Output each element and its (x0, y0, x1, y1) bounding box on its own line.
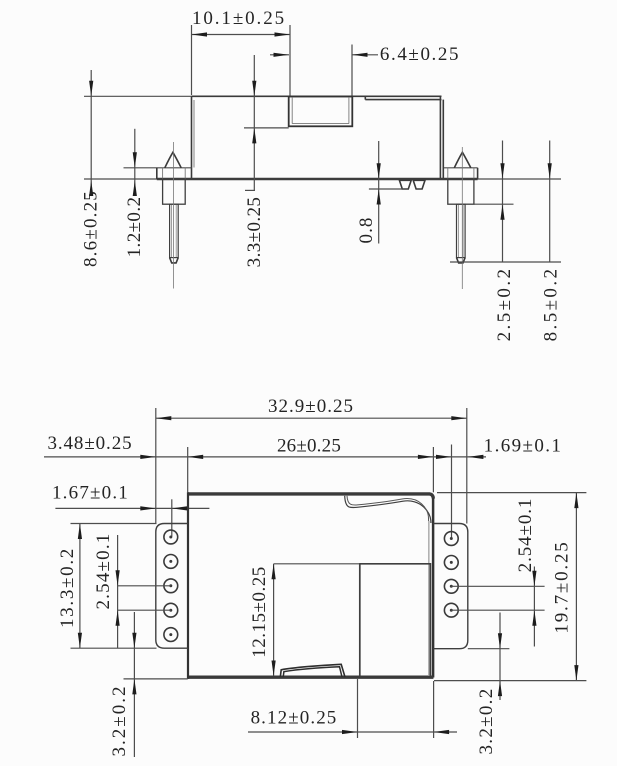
svg-text:2.54±0.1: 2.54±0.1 (515, 498, 536, 573)
svg-text:8.6±0.25: 8.6±0.25 (81, 190, 102, 267)
svg-text:12.15±0.25: 12.15±0.25 (249, 566, 270, 657)
svg-text:8.5±0.2: 8.5±0.2 (541, 267, 562, 342)
svg-text:3.3±0.25: 3.3±0.25 (244, 197, 265, 268)
svg-text:1.69±0.1: 1.69±0.1 (484, 436, 563, 457)
svg-text:32.9±0.25: 32.9±0.25 (268, 396, 354, 417)
svg-text:19.7±0.25: 19.7±0.25 (552, 540, 573, 633)
svg-text:2.5±0.2: 2.5±0.2 (494, 267, 515, 342)
svg-text:10.1±0.25: 10.1±0.25 (192, 8, 286, 29)
svg-text:1.2±0.2: 1.2±0.2 (124, 197, 145, 258)
svg-text:6.4±0.25: 6.4±0.25 (380, 44, 460, 65)
svg-text:3.2±0.2: 3.2±0.2 (109, 685, 130, 757)
svg-text:26±0.25: 26±0.25 (277, 436, 341, 457)
svg-text:0.8: 0.8 (356, 216, 377, 243)
svg-text:1.67±0.1: 1.67±0.1 (52, 483, 129, 504)
svg-text:3.48±0.25: 3.48±0.25 (47, 433, 132, 454)
svg-text:2.54±0.1: 2.54±0.1 (93, 532, 114, 609)
svg-text:13.3±0.2: 13.3±0.2 (57, 547, 78, 628)
svg-text:3.2±0.2: 3.2±0.2 (476, 687, 497, 754)
svg-text:8.12±0.25: 8.12±0.25 (251, 708, 338, 729)
